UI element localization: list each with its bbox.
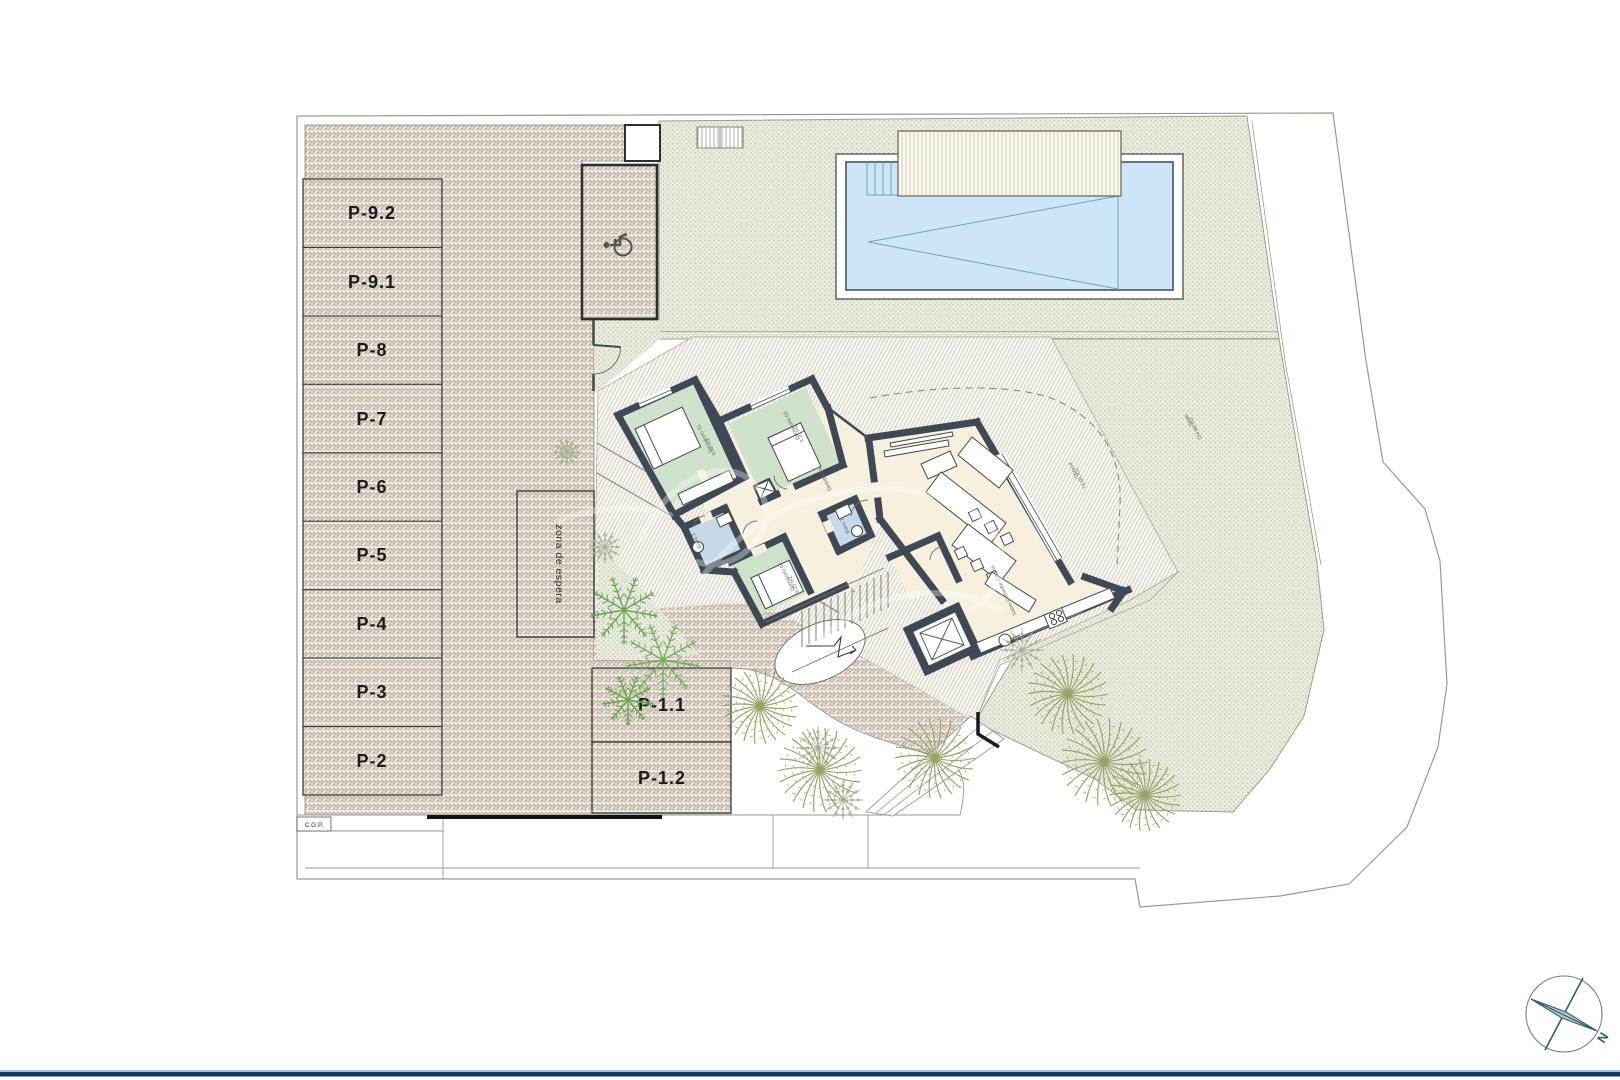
- svg-text:C.G.P.: C.G.P.: [305, 822, 324, 829]
- svg-text:P-8: P-8: [356, 340, 387, 360]
- svg-text:P-2: P-2: [356, 751, 387, 771]
- svg-text:P-1.2: P-1.2: [638, 768, 686, 788]
- svg-text:P-6: P-6: [356, 477, 387, 497]
- svg-text:P-9.2: P-9.2: [348, 203, 396, 223]
- svg-text:zona de espera: zona de espera: [553, 524, 565, 603]
- svg-text:P-3: P-3: [356, 682, 387, 702]
- svg-text:P-5: P-5: [356, 545, 387, 565]
- svg-text:P-9.1: P-9.1: [348, 272, 396, 292]
- svg-text:P-4: P-4: [356, 614, 387, 634]
- svg-text:P-1.1: P-1.1: [638, 695, 686, 715]
- svg-text:P-7: P-7: [356, 409, 387, 429]
